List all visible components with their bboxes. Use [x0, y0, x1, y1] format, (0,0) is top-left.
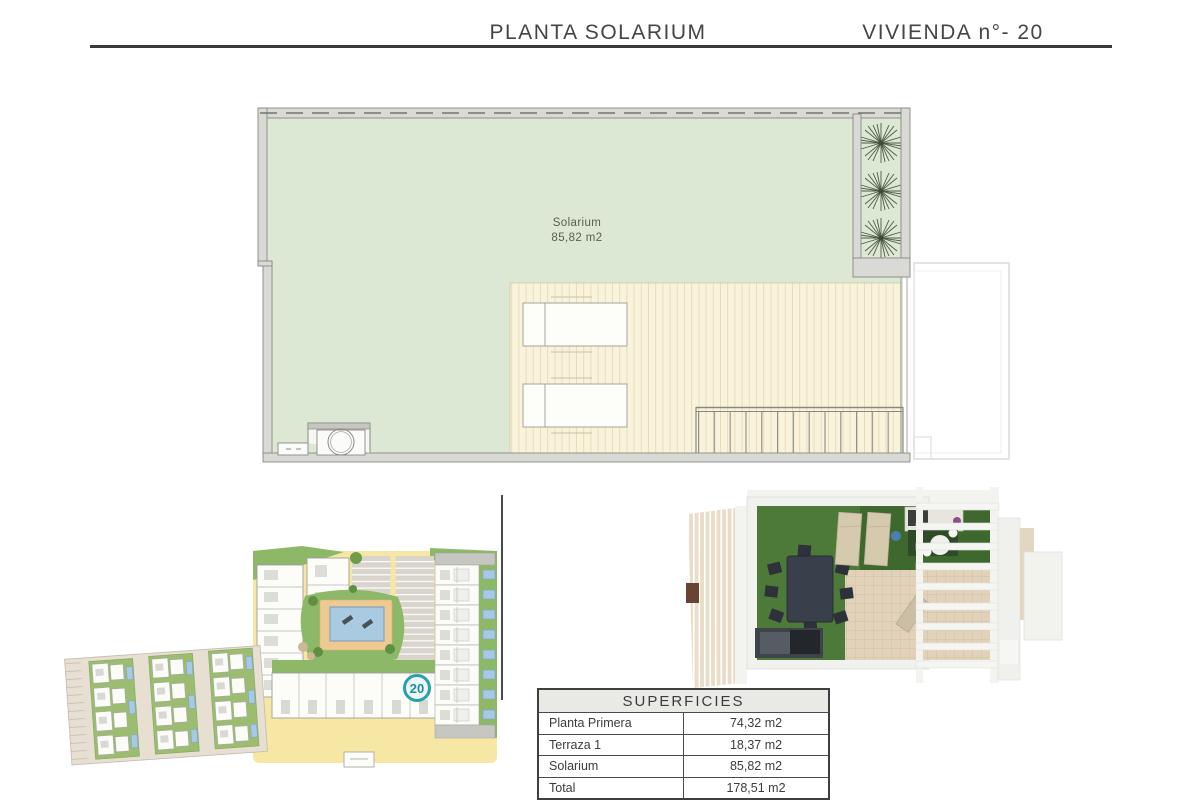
pool: [330, 607, 384, 641]
render-bbq-unit: [755, 628, 823, 658]
planter-strip: [859, 114, 903, 258]
surface-row-value: 178,51 m2: [684, 777, 830, 799]
plan-sheet-page: PLANTA SOLARIUM VIVIENDA n°- 20 Solarium…: [0, 0, 1200, 800]
unit-20-marker: 20: [403, 674, 431, 702]
table-row: Planta Primera 74,32 m2: [538, 713, 829, 735]
surface-row-value: 18,37 m2: [684, 734, 830, 756]
surface-row-label: Terraza 1: [538, 734, 684, 756]
surfaces-table: SUPERFICIES Planta Primera 74,32 m2 Terr…: [537, 688, 830, 800]
header-rule: [90, 45, 1112, 48]
render-right-walls: [998, 518, 1062, 680]
table-title: SUPERFICIES: [538, 689, 829, 713]
table-row: Solarium 85,82 m2: [538, 756, 829, 778]
staircase: [696, 407, 903, 453]
surface-row-label: Total: [538, 777, 684, 799]
sheet-drawing: [0, 0, 1200, 800]
page-title-unit: VIVIENDA n°- 20: [862, 21, 1043, 45]
room-name: Solarium: [551, 216, 602, 231]
table-row: Terraza 1 18,37 m2: [538, 734, 829, 756]
site-right-column: [435, 553, 497, 738]
table-row: Total 178,51 m2: [538, 777, 829, 799]
terrace-3d-render: [686, 487, 1062, 688]
site-left-section: [65, 646, 268, 765]
room-area: 85,82 m2: [551, 231, 602, 246]
solarium-room-label: Solarium 85,82 m2: [551, 216, 602, 246]
table-header-row: SUPERFICIES: [538, 689, 829, 713]
solarium-floor-plan: [258, 108, 1009, 462]
surface-row-value: 74,32 m2: [684, 713, 830, 735]
surface-row-value: 85,82 m2: [684, 756, 830, 778]
surface-row-label: Planta Primera: [538, 713, 684, 735]
surface-row-label: Solarium: [538, 756, 684, 778]
page-title-plan: PLANTA SOLARIUM: [490, 21, 707, 45]
unit-20-number: 20: [410, 681, 424, 696]
pool-area: [298, 585, 404, 667]
neighbor-unit-outline: [914, 263, 1009, 459]
site-plan-drawing: [65, 546, 497, 767]
